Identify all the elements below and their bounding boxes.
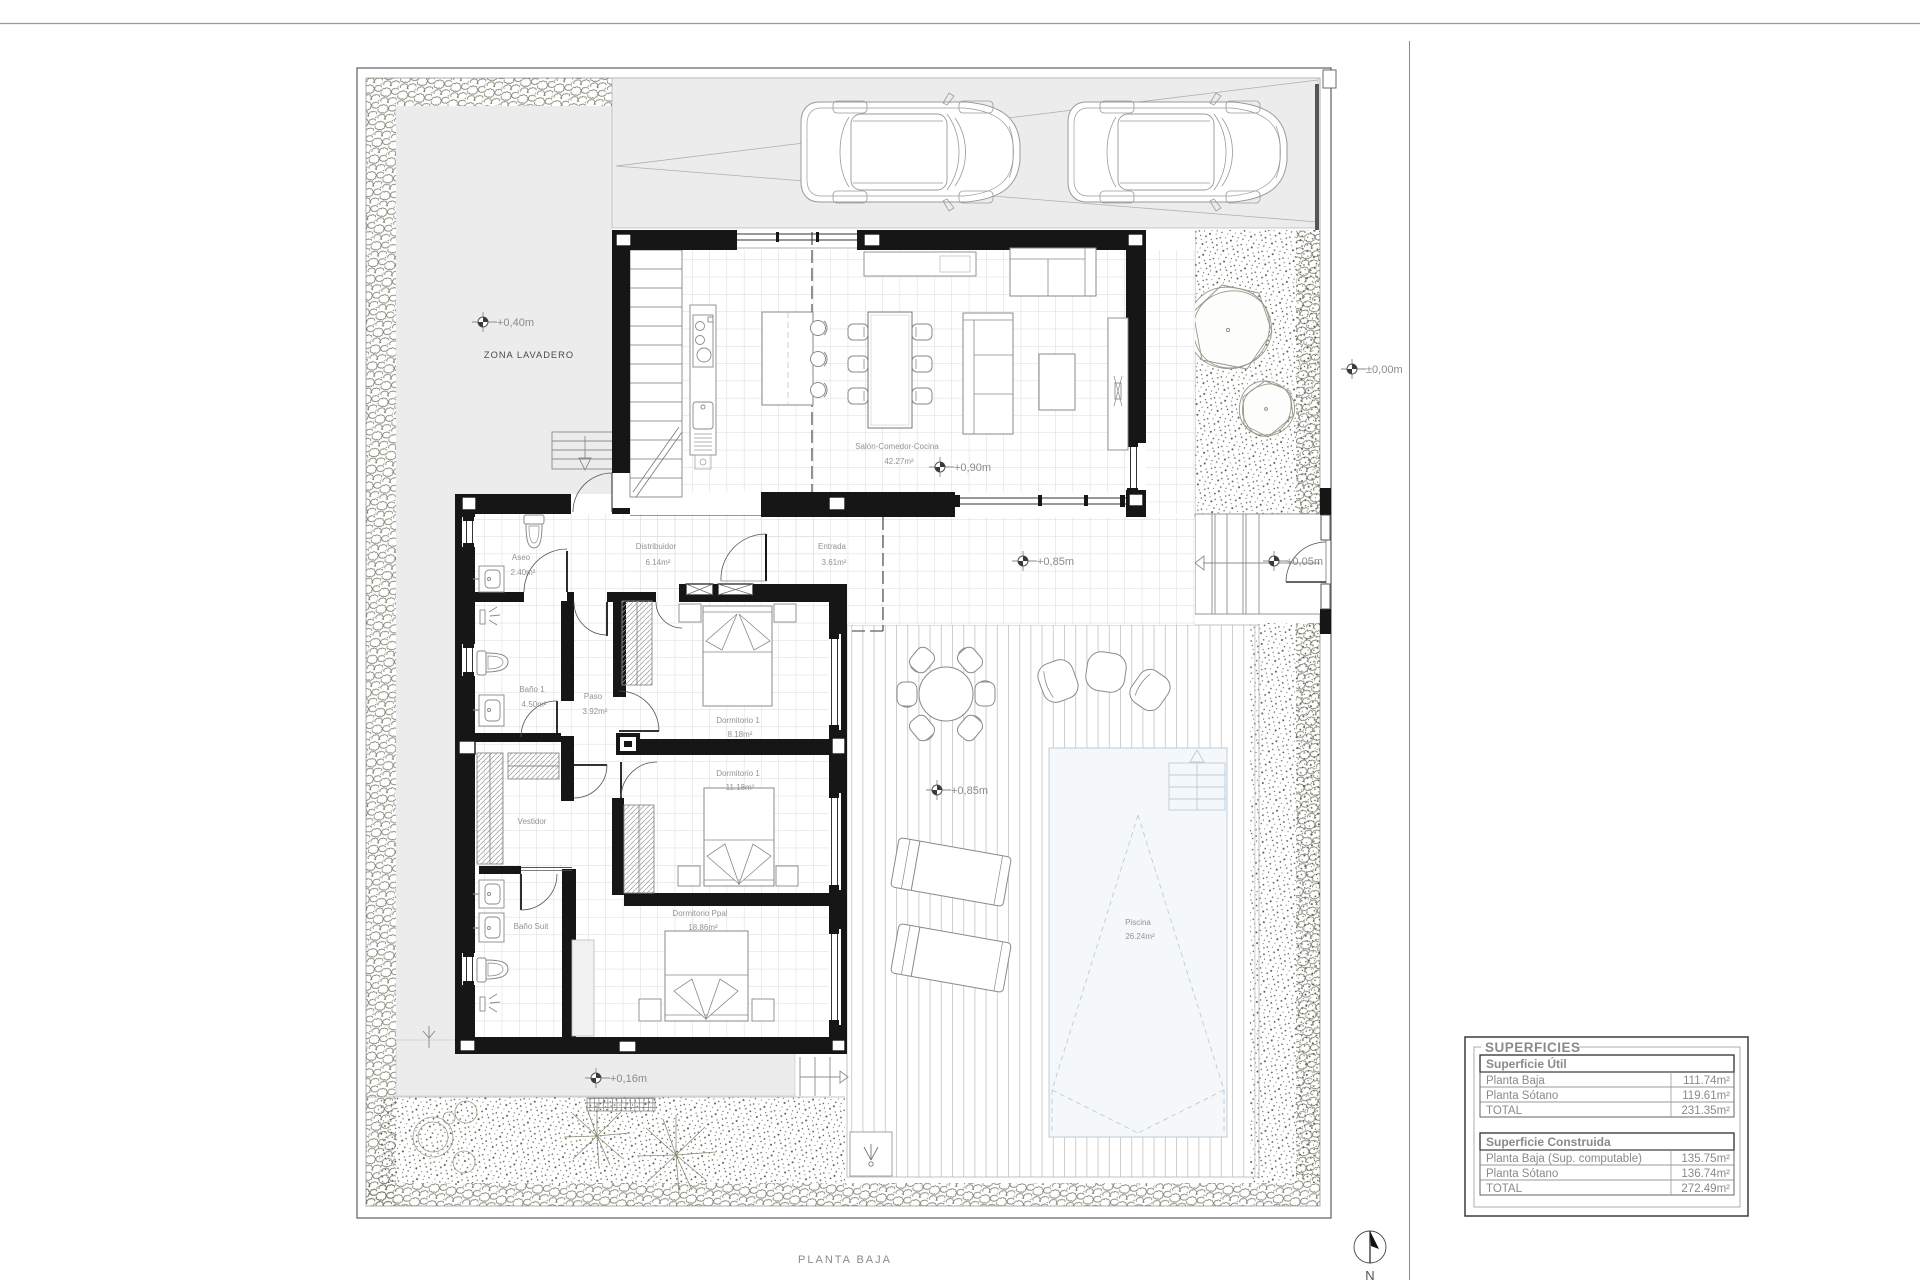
svg-text:11.18m²: 11.18m² [726, 783, 755, 792]
svg-text:±0,00m: ±0,00m [1366, 364, 1403, 376]
svg-text:8.18m²: 8.18m² [728, 730, 753, 739]
svg-text:4.50m²: 4.50m² [522, 700, 547, 709]
svg-text:+0,05m: +0,05m [1286, 556, 1323, 568]
svg-text:Baño Suit: Baño Suit [514, 922, 549, 931]
svg-text:Planta Baja (Sup. computable): Planta Baja (Sup. computable) [1486, 1153, 1642, 1165]
svg-text:3.61m²: 3.61m² [822, 558, 847, 567]
svg-text:6.14m²: 6.14m² [646, 558, 671, 567]
svg-text:N: N [1365, 1268, 1374, 1280]
svg-text:Planta Sótano: Planta Sótano [1486, 1090, 1558, 1102]
svg-text:PLANTA BAJA: PLANTA BAJA [798, 1254, 892, 1266]
svg-text:Vestidor: Vestidor [518, 817, 547, 826]
svg-text:TOTAL: TOTAL [1486, 1105, 1523, 1117]
svg-text:26.24m²: 26.24m² [1125, 932, 1155, 941]
svg-text:Entrada: Entrada [818, 542, 847, 551]
svg-text:+0,90m: +0,90m [954, 462, 991, 474]
svg-text:Distribuidor: Distribuidor [636, 542, 677, 551]
svg-text:Aseo: Aseo [512, 553, 531, 562]
svg-text:Dormitorio Ppal: Dormitorio Ppal [672, 909, 727, 918]
svg-text:+0,85m: +0,85m [951, 785, 988, 797]
svg-text:+0,85m: +0,85m [1037, 556, 1074, 568]
svg-text:Superficie Construida: Superficie Construida [1486, 1135, 1611, 1149]
svg-text:136.74m²: 136.74m² [1681, 1168, 1730, 1180]
svg-text:Piscina: Piscina [1125, 918, 1151, 927]
svg-text:Paso: Paso [584, 692, 603, 701]
svg-text:Dormitorio 1: Dormitorio 1 [716, 716, 760, 725]
svg-text:2.40m²: 2.40m² [511, 568, 536, 577]
svg-text:+0,16m: +0,16m [610, 1073, 647, 1085]
svg-text:231.35m²: 231.35m² [1681, 1105, 1730, 1117]
svg-text:Planta Baja: Planta Baja [1486, 1075, 1545, 1087]
svg-text:42.27m²: 42.27m² [884, 457, 914, 466]
svg-text:TOTAL: TOTAL [1486, 1183, 1523, 1195]
svg-text:3.92m²: 3.92m² [583, 707, 608, 716]
svg-text:ZONA LAVADERO: ZONA LAVADERO [484, 350, 574, 360]
svg-text:Baño 1: Baño 1 [519, 685, 545, 694]
svg-text:+0,40m: +0,40m [497, 317, 534, 329]
svg-text:Planta Sótano: Planta Sótano [1486, 1168, 1558, 1180]
svg-text:119.61m²: 119.61m² [1682, 1090, 1730, 1102]
svg-text:Superficie Útil: Superficie Útil [1486, 1056, 1567, 1071]
svg-text:Salón-Comedor-Cocina: Salón-Comedor-Cocina [855, 442, 939, 451]
svg-text:135.75m²: 135.75m² [1681, 1153, 1730, 1165]
svg-text:Dormitorio 1: Dormitorio 1 [716, 769, 760, 778]
svg-text:18.86m²: 18.86m² [688, 923, 718, 932]
svg-text:272.49m²: 272.49m² [1681, 1183, 1730, 1195]
svg-text:111.74m²: 111.74m² [1683, 1075, 1730, 1087]
svg-text:SUPERFICIES: SUPERFICIES [1485, 1040, 1581, 1055]
